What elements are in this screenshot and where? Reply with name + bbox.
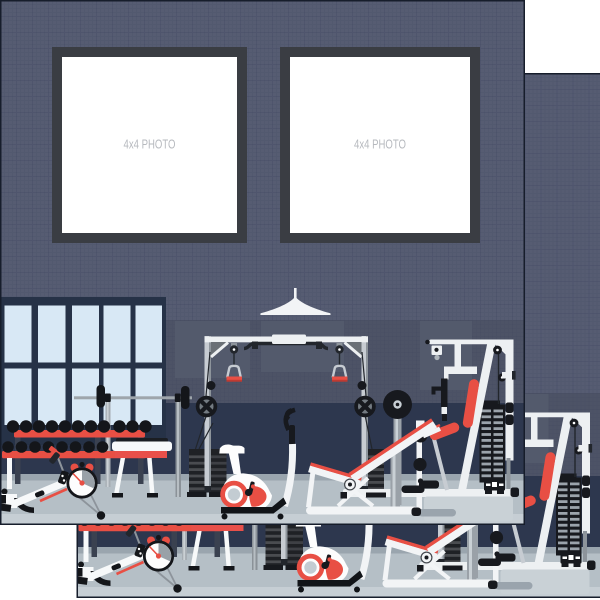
svg-text:4x4 PHOTO: 4x4 PHOTO (124, 138, 176, 152)
svg-text:4x4 PHOTO: 4x4 PHOTO (354, 138, 406, 152)
